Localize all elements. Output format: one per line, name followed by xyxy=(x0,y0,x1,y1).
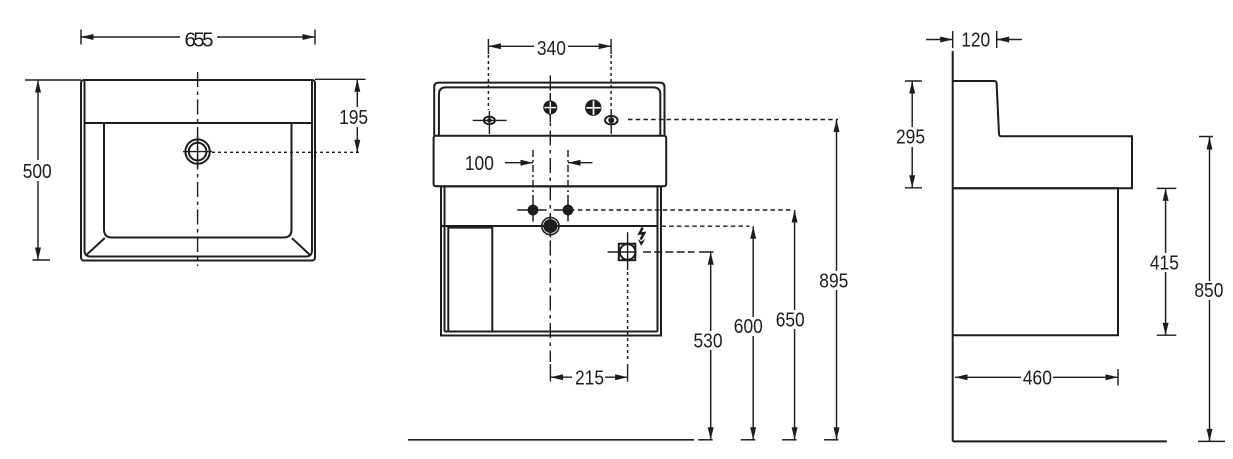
svg-text:340: 340 xyxy=(537,37,566,60)
svg-text:195: 195 xyxy=(339,106,368,129)
svg-text:415: 415 xyxy=(1150,252,1179,275)
svg-text:100: 100 xyxy=(465,152,494,175)
svg-text:650: 650 xyxy=(776,309,805,332)
svg-text:215: 215 xyxy=(575,366,604,389)
svg-text:600: 600 xyxy=(734,315,763,338)
svg-text:655: 655 xyxy=(185,28,214,51)
svg-text:530: 530 xyxy=(694,329,723,352)
svg-text:500: 500 xyxy=(23,160,52,183)
svg-text:120: 120 xyxy=(961,29,990,52)
svg-text:895: 895 xyxy=(819,269,848,292)
svg-text:850: 850 xyxy=(1194,279,1223,302)
svg-text:295: 295 xyxy=(896,126,925,149)
svg-text:460: 460 xyxy=(1023,367,1052,390)
